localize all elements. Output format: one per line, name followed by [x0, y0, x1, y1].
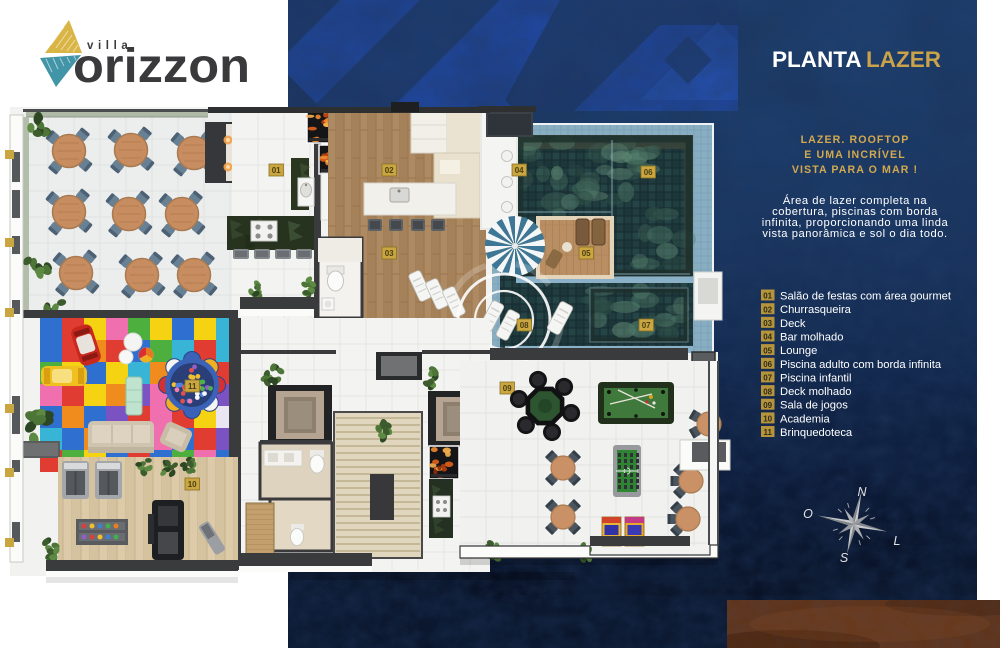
svg-text:Deck molhado: Deck molhado	[780, 386, 852, 398]
svg-text:10: 10	[188, 480, 197, 489]
svg-text:05: 05	[582, 249, 591, 258]
svg-text:Academia: Academia	[780, 413, 831, 425]
svg-text:Salão de festas com área gourm: Salão de festas com área gourmet	[780, 291, 952, 303]
svg-text:S: S	[840, 551, 849, 565]
svg-text:06: 06	[763, 360, 772, 369]
svg-text:11: 11	[763, 428, 772, 437]
svg-text:02: 02	[385, 166, 394, 175]
svg-text:03: 03	[385, 249, 394, 258]
svg-text:vista panorâmica e sol o dia t: vista panorâmica e sol o dia todo.	[762, 228, 947, 240]
svg-text:11: 11	[188, 382, 197, 391]
svg-text:03: 03	[763, 319, 772, 328]
svg-text:07: 07	[642, 321, 651, 330]
svg-text:orizzon: orizzon	[73, 40, 250, 93]
svg-text:08: 08	[520, 321, 529, 330]
svg-text:04: 04	[515, 166, 524, 175]
svg-text:Brinquedoteca: Brinquedoteca	[780, 427, 853, 439]
svg-text:04: 04	[763, 333, 772, 342]
svg-text:Churrasqueira: Churrasqueira	[780, 304, 852, 316]
svg-text:Piscina infantil: Piscina infantil	[780, 372, 852, 384]
svg-text:Deck: Deck	[780, 318, 806, 330]
svg-text:09: 09	[503, 384, 512, 393]
svg-text:PLANTA: PLANTA	[772, 47, 862, 72]
svg-text:09: 09	[763, 401, 772, 410]
svg-text:Sala de jogos: Sala de jogos	[780, 400, 848, 412]
svg-text:06: 06	[644, 168, 653, 177]
svg-text:07: 07	[763, 374, 772, 383]
svg-text:Piscina adulto com borda infin: Piscina adulto com borda infinita	[780, 359, 942, 371]
svg-text:E UMA INCRÍVEL: E UMA INCRÍVEL	[804, 148, 906, 161]
svg-text:02: 02	[763, 305, 772, 314]
svg-text:LAZER. ROOFTOP: LAZER. ROOFTOP	[801, 134, 910, 146]
svg-text:O: O	[803, 507, 813, 521]
svg-text:L: L	[894, 534, 901, 548]
svg-text:08: 08	[763, 387, 772, 396]
svg-text:10: 10	[763, 415, 772, 424]
svg-text:N: N	[857, 485, 867, 499]
svg-text:LAZER: LAZER	[866, 47, 941, 72]
svg-text:Lounge: Lounge	[780, 345, 817, 357]
svg-text:Bar molhado: Bar molhado	[780, 332, 843, 344]
svg-text:01: 01	[272, 166, 281, 175]
svg-text:01: 01	[763, 292, 772, 301]
svg-text:VISTA PARA O MAR !: VISTA PARA O MAR !	[792, 164, 918, 176]
svg-text:05: 05	[763, 346, 772, 355]
